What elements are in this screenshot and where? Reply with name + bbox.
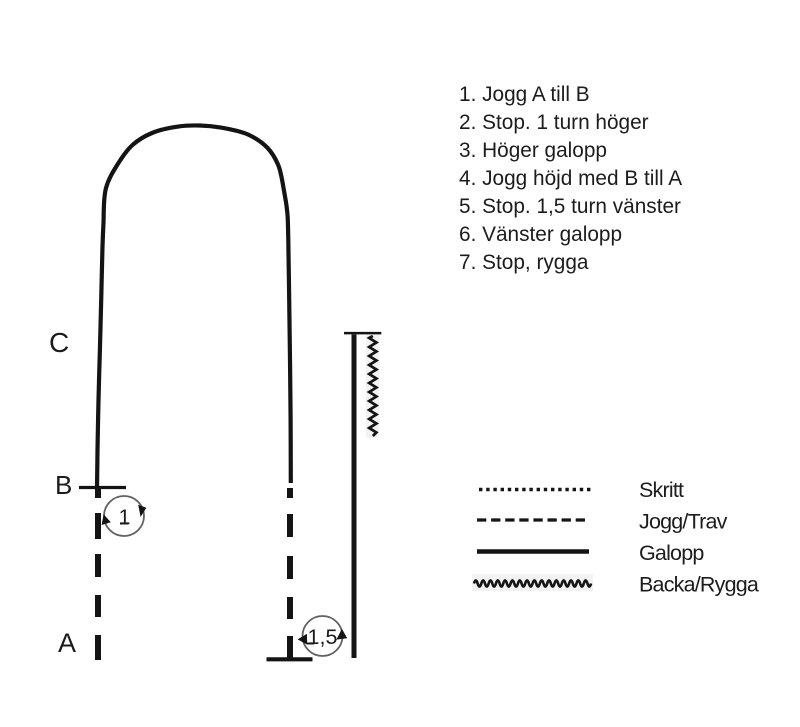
svg-text:1,5: 1,5 <box>308 625 338 649</box>
svg-text:Skritt: Skritt <box>639 478 684 502</box>
svg-text:4. Jogg höjd med B till A: 4. Jogg höjd med B till A <box>459 167 682 190</box>
svg-text:1. Jogg A till B: 1. Jogg A till B <box>459 83 590 106</box>
svg-text:Backa/Rygga: Backa/Rygga <box>639 573 759 597</box>
svg-text:7. Stop, rygga: 7. Stop, rygga <box>459 251 589 274</box>
svg-text:Jogg/Trav: Jogg/Trav <box>639 510 728 534</box>
svg-text:C: C <box>49 327 69 358</box>
svg-text:Galopp: Galopp <box>639 541 704 565</box>
svg-text:3. Höger galopp: 3. Höger galopp <box>459 139 607 162</box>
svg-text:5. Stop. 1,5 turn vänster: 5. Stop. 1,5 turn vänster <box>459 195 681 218</box>
svg-text:2. Stop. 1 turn höger: 2. Stop. 1 turn höger <box>459 111 649 134</box>
svg-text:6. Vänster galopp: 6. Vänster galopp <box>459 223 622 246</box>
svg-text:1: 1 <box>119 505 131 529</box>
svg-text:B: B <box>55 470 72 500</box>
svg-text:A: A <box>58 628 76 658</box>
